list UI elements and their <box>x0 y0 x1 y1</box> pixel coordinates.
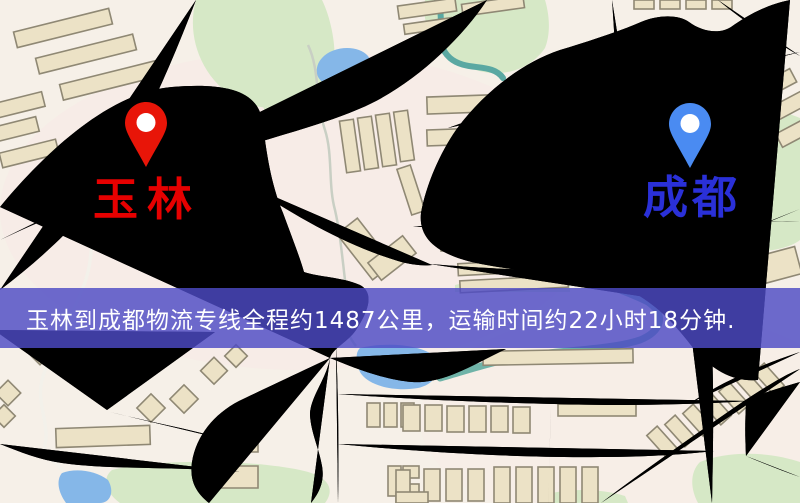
origin-marker[interactable] <box>124 101 168 169</box>
destination-label: 成都 <box>643 175 741 220</box>
destination-pin-icon <box>668 102 712 170</box>
destination-marker[interactable] <box>668 102 712 170</box>
map-screenshot: 玉林到成都物流专线全程约1487公里，运输时间约22小时18分钟. 玉林 成都 <box>0 0 800 503</box>
origin-pin-icon <box>124 101 168 169</box>
route-info-text: 玉林到成都物流专线全程约1487公里，运输时间约22小时18分钟. <box>26 301 735 335</box>
route-info-banner: 玉林到成都物流专线全程约1487公里，运输时间约22小时18分钟. <box>0 288 800 348</box>
origin-label: 玉林 <box>93 177 201 222</box>
map-canvas <box>0 0 800 503</box>
